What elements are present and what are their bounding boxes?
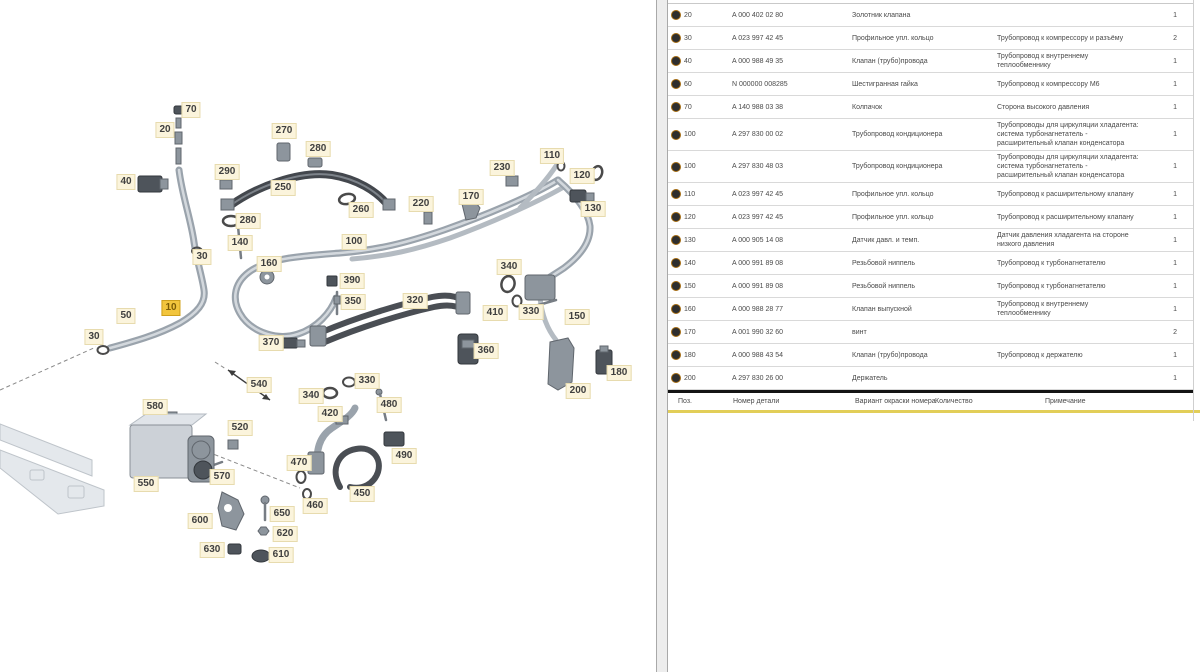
callout-label[interactable]: 320 — [403, 293, 428, 309]
callout-icon-cell — [668, 102, 684, 112]
cell-part-number: A 297 830 00 02 — [726, 130, 846, 139]
callout-layer: 7020402902702802502602802201702301101201… — [0, 0, 656, 672]
cell-part-number: A 000 988 43 54 — [726, 351, 846, 360]
callout-label[interactable]: 170 — [459, 189, 484, 205]
parts-table-row[interactable]: 40A 000 988 49 35Клапан (трубо)проводаТр… — [668, 50, 1193, 73]
parts-table-row[interactable]: 110A 023 997 42 45Профильное упл. кольцо… — [668, 183, 1193, 206]
cell-name: Трубопровод кондиционера — [846, 162, 991, 171]
part-locator-balloon-icon[interactable] — [671, 350, 681, 360]
parts-table-header: Поз. Номер детали Вариант окраски номера… — [668, 393, 1193, 410]
part-locator-balloon-icon[interactable] — [671, 33, 681, 43]
parts-table-row[interactable]: 150A 000 991 89 08Резьбовой ниппельТрубо… — [668, 275, 1193, 298]
cell-quantity: 1 — [1143, 259, 1177, 268]
header-pos: Поз. — [678, 397, 692, 406]
parts-table-row[interactable]: 60N 000000 008285Шестигранная гайкаТрубо… — [668, 73, 1193, 96]
callout-icon-cell — [668, 56, 684, 66]
cell-position: 200 — [684, 374, 726, 383]
cell-part-number: A 000 991 89 08 — [726, 259, 846, 268]
callout-label[interactable]: 100 — [342, 234, 367, 250]
parts-table-row[interactable]: 100A 297 830 48 03Трубопровод кондиционе… — [668, 151, 1193, 183]
callout-label[interactable]: 580 — [143, 399, 168, 415]
parts-table-row[interactable]: 140A 000 991 89 08Резьбовой ниппельТрубо… — [668, 252, 1193, 275]
parts-table-body: 20A 000 402 02 80Золотник клапана130A 02… — [668, 3, 1193, 390]
callout-label[interactable]: 350 — [341, 294, 366, 310]
callout-label[interactable]: 50 — [116, 308, 135, 324]
callout-icon-cell — [668, 281, 684, 291]
callout-label[interactable]: 130 — [581, 201, 606, 217]
cell-quantity: 1 — [1143, 282, 1177, 291]
callout-label[interactable]: 410 — [483, 305, 508, 321]
callout-label[interactable]: 480 — [377, 397, 402, 413]
callout-label[interactable]: 120 — [570, 168, 595, 184]
callout-label[interactable]: 340 — [497, 259, 522, 275]
cell-note: Трубопровод к турбонагнетателю — [991, 282, 1143, 291]
cell-name: Датчик давл. и темп. — [846, 236, 991, 245]
part-locator-balloon-icon[interactable] — [671, 102, 681, 112]
callout-label[interactable]: 330 — [519, 304, 544, 320]
cell-note: Трубопровод к внутреннему теплообменнику — [991, 300, 1143, 318]
cell-quantity: 1 — [1143, 130, 1177, 139]
callout-label[interactable]: 30 — [192, 249, 211, 265]
cell-quantity: 1 — [1143, 305, 1177, 314]
cell-position: 130 — [684, 236, 726, 245]
callout-icon-cell — [668, 79, 684, 89]
callout-label[interactable]: 140 — [228, 235, 253, 251]
callout-icon-cell — [668, 10, 684, 20]
callout-icon-cell — [668, 162, 684, 172]
cell-quantity: 1 — [1143, 213, 1177, 222]
cell-name: Клапан (трубо)провода — [846, 57, 991, 66]
cell-part-number: A 023 997 42 45 — [726, 34, 846, 43]
cell-name: Золотник клапана — [846, 11, 991, 20]
part-locator-balloon-icon[interactable] — [671, 212, 681, 222]
parts-table-row[interactable]: 170A 001 990 32 60винт2 — [668, 321, 1193, 344]
cell-quantity: 1 — [1143, 11, 1177, 20]
cell-position: 140 — [684, 259, 726, 268]
table-right-border — [1193, 0, 1194, 421]
cell-position: 100 — [684, 162, 726, 171]
cell-name: Резьбовой ниппель — [846, 282, 991, 291]
part-locator-balloon-icon[interactable] — [671, 189, 681, 199]
callout-label[interactable]: 290 — [215, 164, 240, 180]
callout-icon-cell — [668, 33, 684, 43]
cell-note: Трубопровод к расширительному клапану — [991, 190, 1143, 199]
part-locator-balloon-icon[interactable] — [671, 327, 681, 337]
parts-table-row[interactable]: 120A 023 997 42 45Профильное упл. кольцо… — [668, 206, 1193, 229]
callout-icon-cell — [668, 373, 684, 383]
cell-quantity: 1 — [1143, 162, 1177, 171]
part-locator-balloon-icon[interactable] — [671, 130, 681, 140]
callout-label[interactable]: 520 — [228, 420, 253, 436]
callout-icon-cell — [668, 258, 684, 268]
cell-position: 150 — [684, 282, 726, 291]
cell-part-number: A 000 991 89 08 — [726, 282, 846, 291]
cell-part-number: A 000 988 49 35 — [726, 57, 846, 66]
callout-label[interactable]: 620 — [273, 526, 298, 542]
callout-icon-cell — [668, 189, 684, 199]
callout-label[interactable]: 280 — [236, 213, 261, 229]
cell-quantity: 1 — [1143, 57, 1177, 66]
cell-note: Трубопровод к расширительному клапану — [991, 213, 1143, 222]
cell-part-number: A 297 830 48 03 — [726, 162, 846, 171]
callout-label[interactable]: 360 — [474, 343, 499, 359]
cell-quantity: 2 — [1143, 328, 1177, 337]
callout-label[interactable]: 20 — [155, 122, 174, 138]
cell-note: Трубопровод к турбонагнетателю — [991, 259, 1143, 268]
panel-divider-scrollbar[interactable] — [656, 0, 668, 672]
cell-part-number: A 297 830 26 00 — [726, 374, 846, 383]
cell-name: Трубопровод кондиционера — [846, 130, 991, 139]
parts-table-row[interactable]: 160A 000 988 28 77Клапан выпускнойТрубоп… — [668, 298, 1193, 321]
header-name: Вариант окраски номера — [855, 397, 936, 406]
part-locator-balloon-icon[interactable] — [671, 281, 681, 291]
parts-table-row[interactable]: 200A 297 830 26 00Держатель1 — [668, 367, 1193, 390]
callout-label[interactable]: 490 — [392, 448, 417, 464]
cell-name: Профильное упл. кольцо — [846, 190, 991, 199]
cell-part-number: A 001 990 32 60 — [726, 328, 846, 337]
callout-label[interactable]: 70 — [181, 102, 200, 118]
callout-label[interactable]: 30 — [84, 329, 103, 345]
cell-note: Трубопроводы для циркуляции хладагента: … — [991, 153, 1143, 180]
callout-icon-cell — [668, 327, 684, 337]
callout-label-highlighted[interactable]: 10 — [161, 300, 180, 316]
cell-note: Датчик давления хладагента на стороне ни… — [991, 231, 1143, 249]
part-locator-balloon-icon[interactable] — [671, 10, 681, 20]
diagram-panel: 7020402902702802502602802201702301101201… — [0, 0, 656, 672]
part-locator-balloon-icon[interactable] — [671, 79, 681, 89]
callout-label[interactable]: 390 — [340, 273, 365, 289]
callout-label[interactable]: 370 — [259, 335, 284, 351]
cell-part-number: A 023 997 42 45 — [726, 213, 846, 222]
callout-label[interactable]: 250 — [271, 180, 296, 196]
callout-label[interactable]: 550 — [134, 476, 159, 492]
callout-label[interactable]: 450 — [350, 486, 375, 502]
header-highlight-line — [668, 410, 1200, 413]
callout-icon-cell — [668, 304, 684, 314]
parts-table-row[interactable]: 100A 297 830 00 02Трубопровод кондиционе… — [668, 119, 1193, 151]
parts-table-row[interactable]: 20A 000 402 02 80Золотник клапана1 — [668, 4, 1193, 27]
cell-part-number: A 140 988 03 38 — [726, 103, 846, 112]
cell-name: Профильное упл. кольцо — [846, 34, 991, 43]
callout-label[interactable]: 630 — [200, 542, 225, 558]
cell-position: 40 — [684, 57, 726, 66]
callout-label[interactable]: 150 — [565, 309, 590, 325]
callout-label[interactable]: 230 — [490, 160, 515, 176]
header-note: Примечание — [1045, 397, 1086, 406]
callout-label[interactable]: 340 — [299, 388, 324, 404]
cell-note: Трубопровод к внутреннему теплообменнику — [991, 52, 1143, 70]
cell-position: 160 — [684, 305, 726, 314]
cell-note: Трубопроводы для циркуляции хладагента: … — [991, 121, 1143, 148]
cell-quantity: 1 — [1143, 351, 1177, 360]
parts-table-row[interactable]: 30A 023 997 42 45Профильное упл. кольцоТ… — [668, 27, 1193, 50]
callout-label[interactable]: 650 — [270, 506, 295, 522]
cell-name: Резьбовой ниппель — [846, 259, 991, 268]
cell-note: Трубопровод к держателю — [991, 351, 1143, 360]
cell-position: 60 — [684, 80, 726, 89]
callout-label[interactable]: 270 — [272, 123, 297, 139]
callout-icon-cell — [668, 212, 684, 222]
cell-position: 70 — [684, 103, 726, 112]
part-locator-balloon-icon[interactable] — [671, 235, 681, 245]
parts-list-panel: 20A 000 402 02 80Золотник клапана130A 02… — [668, 0, 1200, 672]
callout-label[interactable]: 460 — [303, 498, 328, 514]
cell-position: 170 — [684, 328, 726, 337]
part-locator-balloon-icon[interactable] — [671, 373, 681, 383]
cell-note: Трубопровод к компрессору M6 — [991, 80, 1143, 89]
callout-label[interactable]: 180 — [607, 365, 632, 381]
callout-label[interactable]: 280 — [306, 141, 331, 157]
callout-label[interactable]: 420 — [318, 406, 343, 422]
callout-label[interactable]: 610 — [269, 547, 294, 563]
cell-quantity: 1 — [1143, 190, 1177, 199]
callout-label[interactable]: 160 — [257, 256, 282, 272]
cell-part-number: A 000 402 02 80 — [726, 11, 846, 20]
cell-position: 110 — [684, 190, 726, 199]
callout-label[interactable]: 110 — [540, 148, 564, 164]
cell-name: Клапан выпускной — [846, 305, 991, 314]
callout-label[interactable]: 40 — [116, 174, 135, 190]
callout-icon-cell — [668, 350, 684, 360]
callout-label[interactable]: 540 — [247, 377, 272, 393]
header-quantity: Количество — [935, 397, 973, 406]
part-locator-balloon-icon[interactable] — [671, 56, 681, 66]
callout-label[interactable]: 260 — [349, 202, 374, 218]
callout-label[interactable]: 220 — [409, 196, 434, 212]
callout-label[interactable]: 600 — [188, 513, 213, 529]
parts-table-row[interactable]: 70A 140 988 03 38КолпачокСторона высоког… — [668, 96, 1193, 119]
callout-label[interactable]: 200 — [566, 383, 591, 399]
cell-name: Профильное упл. кольцо — [846, 213, 991, 222]
cell-position: 30 — [684, 34, 726, 43]
cell-name: Клапан (трубо)провода — [846, 351, 991, 360]
callout-label[interactable]: 470 — [287, 455, 312, 471]
cell-position: 120 — [684, 213, 726, 222]
cell-position: 180 — [684, 351, 726, 360]
callout-label[interactable]: 330 — [355, 373, 380, 389]
cell-name: Держатель — [846, 374, 991, 383]
parts-catalog-window: 7020402902702802502602802201702301101201… — [0, 0, 1200, 672]
cell-quantity: 1 — [1143, 103, 1177, 112]
cell-position: 20 — [684, 11, 726, 20]
cell-part-number: A 000 988 28 77 — [726, 305, 846, 314]
cell-name: винт — [846, 328, 991, 337]
cell-quantity: 1 — [1143, 80, 1177, 89]
cell-quantity: 1 — [1143, 374, 1177, 383]
part-locator-balloon-icon[interactable] — [671, 258, 681, 268]
cell-position: 100 — [684, 130, 726, 139]
cell-note: Сторона высокого давления — [991, 103, 1143, 112]
cell-name: Шестигранная гайка — [846, 80, 991, 89]
cell-note: Трубопровод к компрессору и разъёму — [991, 34, 1143, 43]
cell-part-number: A 023 997 42 45 — [726, 190, 846, 199]
cell-quantity: 2 — [1143, 34, 1177, 43]
cell-name: Колпачок — [846, 103, 991, 112]
callout-icon-cell — [668, 130, 684, 140]
cell-quantity: 1 — [1143, 236, 1177, 245]
header-part-number: Номер детали — [733, 397, 779, 406]
parts-table-row[interactable]: 180A 000 988 43 54Клапан (трубо)проводаТ… — [668, 344, 1193, 367]
cell-part-number: A 000 905 14 08 — [726, 236, 846, 245]
parts-table-row[interactable]: 130A 000 905 14 08Датчик давл. и темп.Да… — [668, 229, 1193, 252]
part-locator-balloon-icon[interactable] — [671, 304, 681, 314]
callout-icon-cell — [668, 235, 684, 245]
callout-label[interactable]: 570 — [210, 469, 235, 485]
part-locator-balloon-icon[interactable] — [671, 162, 681, 172]
cell-part-number: N 000000 008285 — [726, 80, 846, 89]
